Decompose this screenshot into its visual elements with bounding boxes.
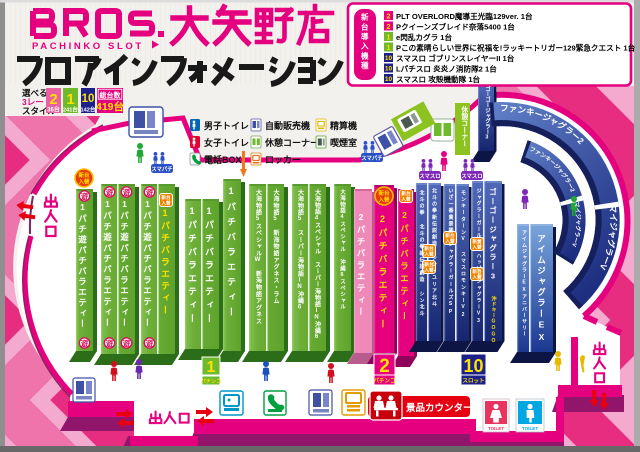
svg-text:総台数: 総台数: [100, 91, 122, 100]
svg-text:1: 1: [386, 33, 390, 42]
svg-text:喫煙室: 喫煙室: [330, 137, 357, 148]
svg-text:TOILET: TOILET: [522, 426, 538, 431]
svg-text:419台: 419台: [96, 100, 124, 113]
svg-text:10: 10: [82, 93, 95, 105]
svg-text:電話BOX: 電話BOX: [204, 154, 242, 165]
svg-text:2: 2: [386, 22, 390, 31]
svg-text:景品カウンター: 景品カウンター: [405, 402, 473, 414]
svg-text:241台: 241台: [63, 106, 78, 114]
svg-text:休憩コーナー: 休憩コーナー: [264, 137, 319, 148]
svg-text:Pクイーンズブレイド奈落5400 1台: Pクイーンズブレイド奈落5400 1台: [396, 22, 515, 32]
svg-text:10: 10: [385, 76, 393, 83]
svg-text:2: 2: [49, 91, 57, 108]
svg-text:PACHINKO SLOT: PACHINKO SLOT: [32, 41, 144, 52]
svg-text:Pこの素晴らしい世界に祝福を!ラッキートリガー129緊急クエ: Pこの素晴らしい世界に祝福を!ラッキートリガー129緊急クエスト 1台: [396, 43, 636, 53]
svg-text:e閃乱カグラ 1台: e閃乱カグラ 1台: [396, 32, 453, 42]
svg-text:TOILET: TOILET: [488, 426, 504, 431]
svg-text:パチンコ: パチンコ: [201, 378, 221, 385]
svg-text:36台: 36台: [47, 106, 60, 114]
svg-text:1: 1: [66, 91, 74, 108]
svg-text:ロッカー: ロッカー: [265, 155, 301, 165]
svg-text:1: 1: [207, 359, 216, 376]
svg-text:自動販売機: 自動販売機: [265, 120, 310, 131]
svg-text:男子トイレ: 男子トイレ: [204, 121, 249, 131]
svg-text:スマスロ 攻殻機動隊 1台: スマスロ 攻殻機動隊 1台: [396, 74, 481, 84]
svg-text:パチンコ: パチンコ: [373, 377, 395, 385]
svg-text:2: 2: [386, 12, 390, 21]
svg-text:10: 10: [463, 356, 483, 376]
svg-text:スマスロ ゴブリンスレイヤーII 1台: スマスロ ゴブリンスレイヤーII 1台: [396, 53, 515, 63]
svg-text:女子トイレ: 女子トイレ: [204, 137, 249, 148]
svg-text:スロット: スロット: [462, 378, 484, 385]
svg-text:精算機: 精算機: [330, 120, 357, 131]
svg-text:Lパチスロ 炎炎ノ消防隊2 1台: Lパチスロ 炎炎ノ消防隊2 1台: [396, 64, 497, 74]
svg-text:2: 2: [379, 356, 390, 377]
svg-text:1: 1: [386, 43, 390, 52]
svg-text:10: 10: [385, 55, 393, 62]
svg-text:10: 10: [385, 66, 393, 73]
svg-text:PLT OVERLORD魔導王光臨129ver. 1台: PLT OVERLORD魔導王光臨129ver. 1台: [396, 11, 533, 21]
svg-text:142台: 142台: [81, 106, 96, 114]
